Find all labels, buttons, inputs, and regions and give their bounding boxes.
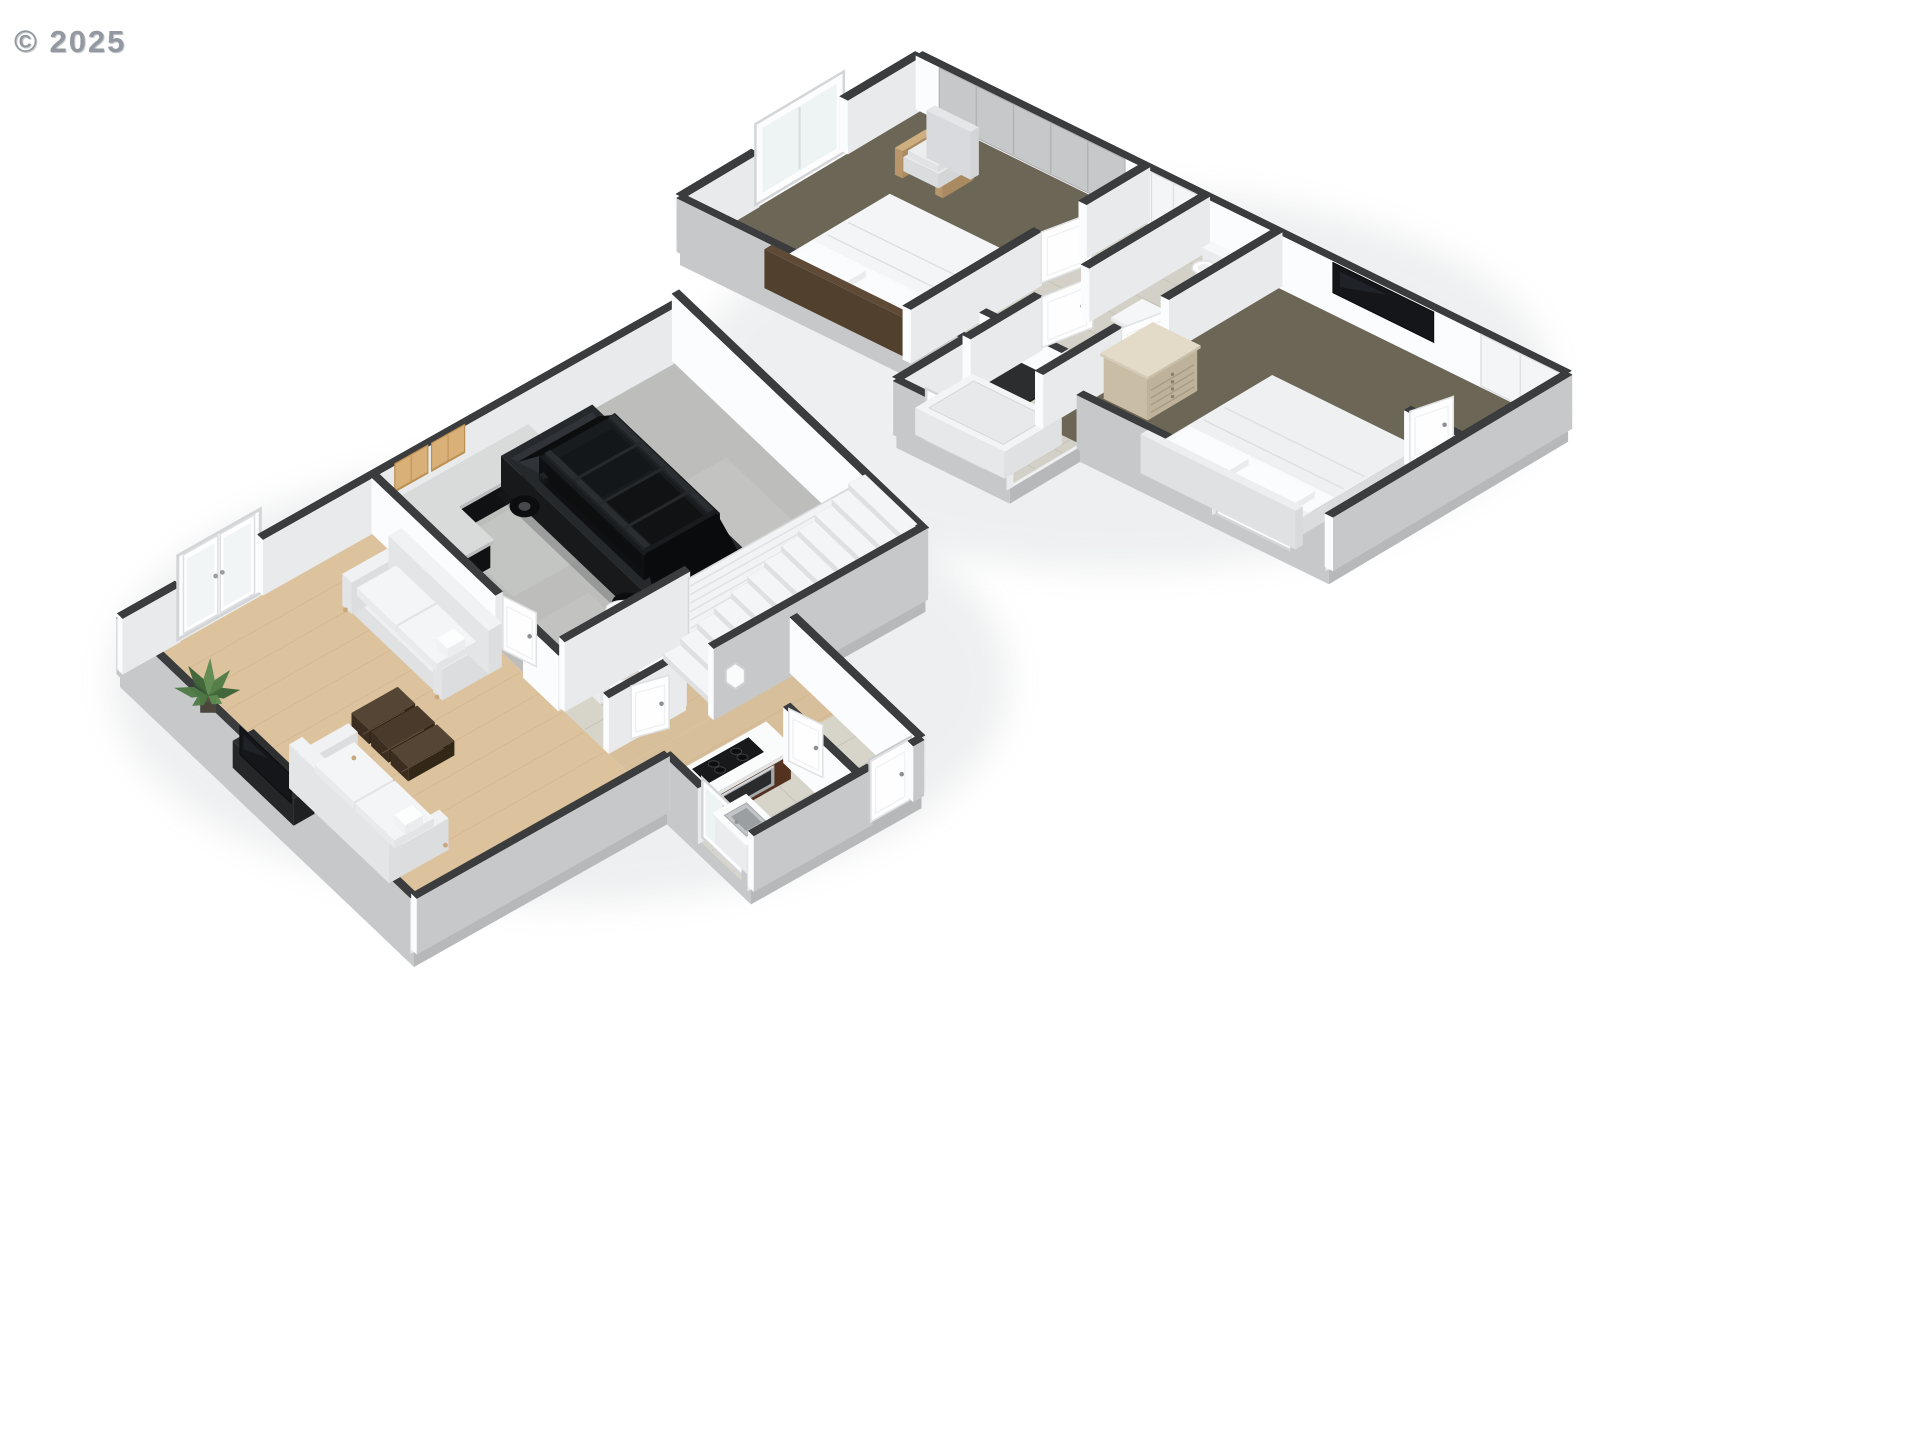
floors-layer xyxy=(110,51,1572,967)
floorplan-image: © 2025 xyxy=(0,0,1920,1440)
powder-door-leaf xyxy=(631,675,669,738)
floorplan-scene xyxy=(0,0,1920,1440)
entry-south-wall-b xyxy=(908,735,924,802)
hex-wall-decor xyxy=(726,663,745,689)
